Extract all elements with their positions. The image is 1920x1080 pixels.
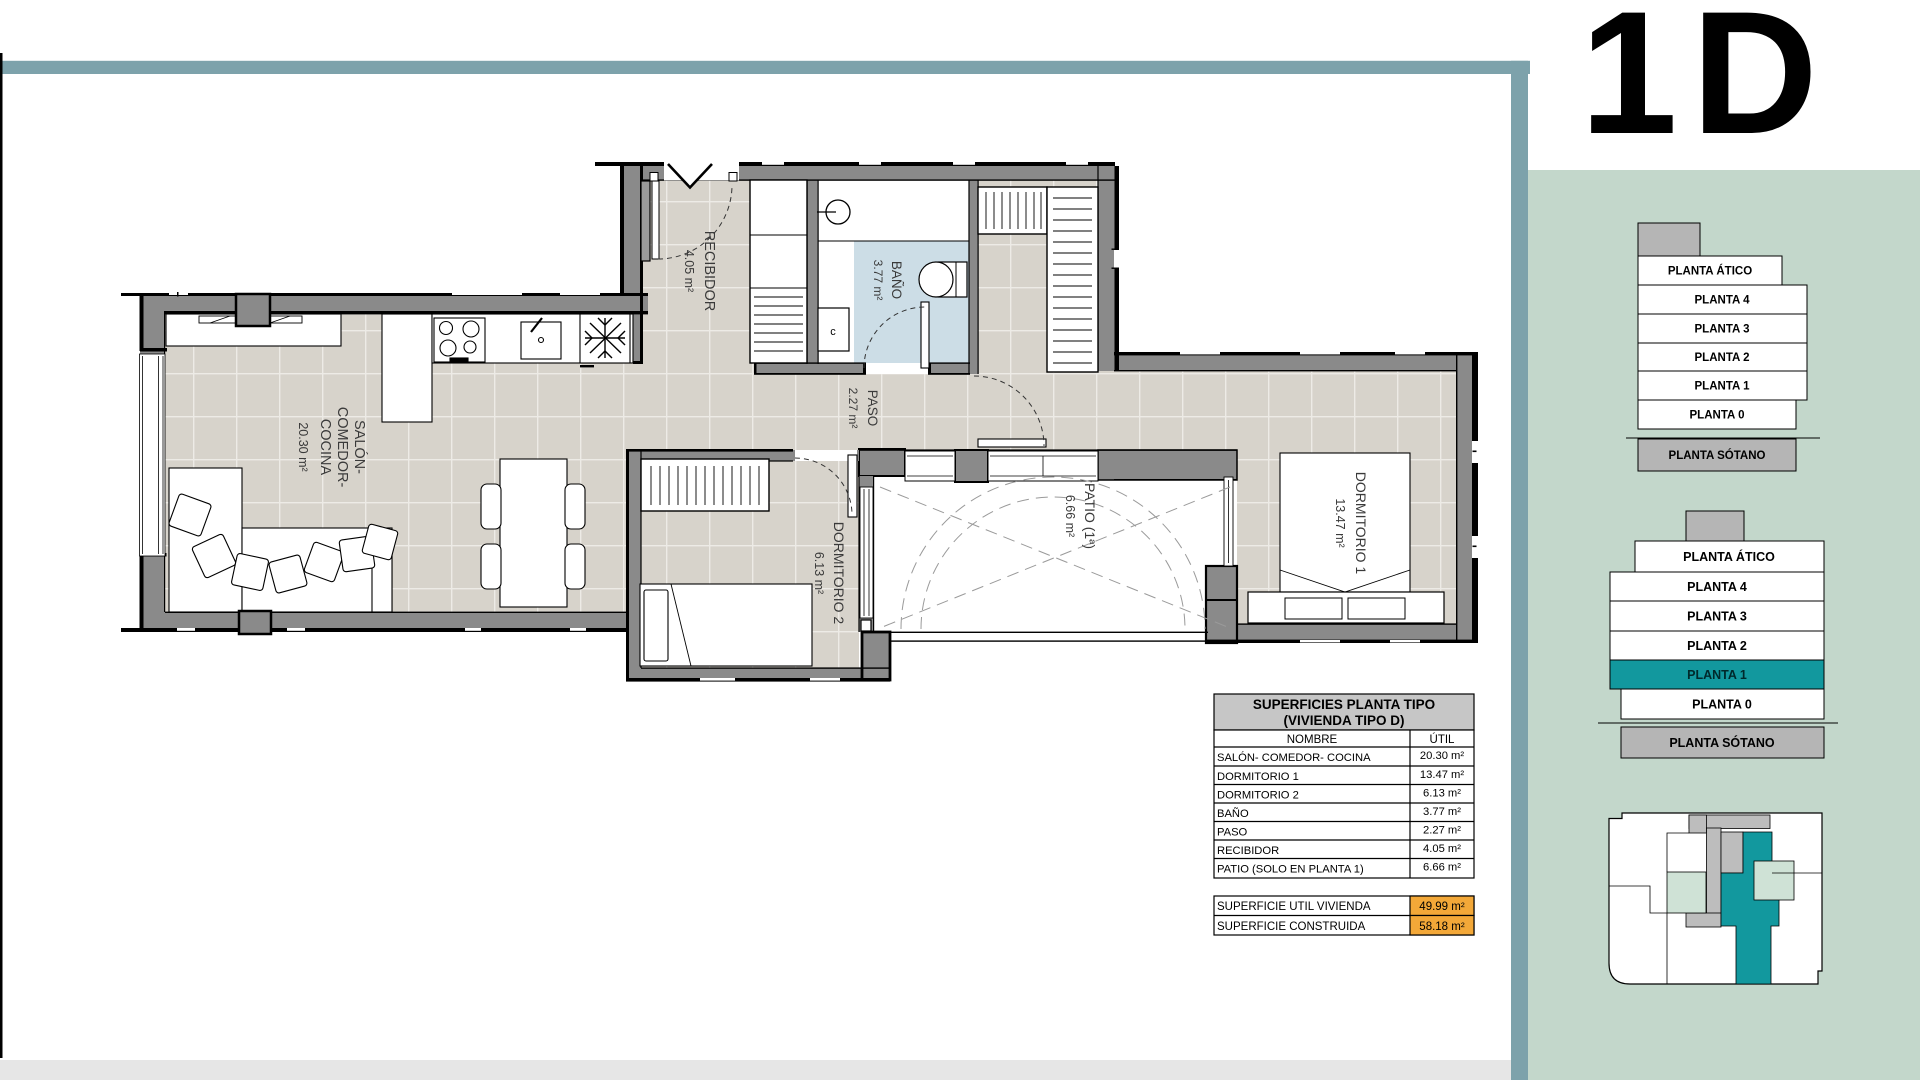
svg-text:13.47 m²: 13.47 m² [1420,769,1464,781]
svg-text:PLANTA 2: PLANTA 2 [1687,639,1747,653]
svg-text:NOMBRE: NOMBRE [1287,734,1338,746]
svg-text:DORMITORIO 2: DORMITORIO 2 [1217,790,1299,802]
svg-text:BAÑO: BAÑO [1217,807,1249,820]
svg-text:3.77 m²: 3.77 m² [1423,806,1461,818]
svg-text:PLANTA 0: PLANTA 0 [1692,698,1752,712]
svg-text:3.77 m²: 3.77 m² [871,260,885,301]
svg-text:6.66 m²: 6.66 m² [1063,495,1077,537]
svg-text:2.27 m²: 2.27 m² [846,388,860,429]
svg-text:4.05 m²: 4.05 m² [1423,843,1461,855]
svg-text:SALÓN-: SALÓN- [351,420,368,474]
svg-text:RECIBIDOR: RECIBIDOR [1217,845,1279,857]
svg-text:DORMITORIO 1: DORMITORIO 1 [1217,771,1299,783]
svg-text:58.18 m²: 58.18 m² [1419,921,1465,933]
svg-text:PLANTA ÁTICO: PLANTA ÁTICO [1668,265,1752,278]
svg-text:PATIO (SOLO EN PLANTA 1): PATIO (SOLO EN PLANTA 1) [1217,864,1364,876]
svg-text:4.05 m²: 4.05 m² [682,250,696,292]
svg-text:PLANTA 4: PLANTA 4 [1695,295,1751,307]
svg-text:1D: 1D [1580,0,1832,171]
svg-text:COMEDOR-: COMEDOR- [334,407,350,488]
svg-text:PLANTA 1: PLANTA 1 [1695,381,1751,393]
svg-text:PLANTA 4: PLANTA 4 [1687,580,1747,594]
svg-text:PLANTA SÓTANO: PLANTA SÓTANO [1669,735,1775,750]
svg-text:SUPERFICIE UTIL VIVIENDA: SUPERFICIE UTIL VIVIENDA [1217,901,1371,913]
svg-text:SUPERFICIE CONSTRUIDA: SUPERFICIE CONSTRUIDA [1217,921,1366,933]
svg-text:DORMITORIO 2: DORMITORIO 2 [831,522,847,625]
svg-text:20.30 m²: 20.30 m² [1420,750,1464,762]
svg-text:BAÑO: BAÑO [889,261,904,299]
svg-text:2.27 m²: 2.27 m² [1423,825,1461,837]
svg-text:PLANTA 0: PLANTA 0 [1690,410,1745,422]
svg-text:6.13 m²: 6.13 m² [1423,788,1461,800]
svg-text:PASO: PASO [1217,827,1248,839]
svg-text:SUPERFICIES PLANTA TIPO: SUPERFICIES PLANTA TIPO [1253,697,1435,712]
svg-text:PLANTA SÓTANO: PLANTA SÓTANO [1669,449,1766,462]
svg-text:SALÓN- COMEDOR- COCINA: SALÓN- COMEDOR- COCINA [1217,751,1371,764]
svg-text:13.47 m²: 13.47 m² [1333,498,1347,547]
svg-text:(VIVIENDA TIPO D): (VIVIENDA TIPO D) [1283,713,1404,728]
svg-text:PLANTA 2: PLANTA 2 [1695,352,1750,364]
svg-text:20.30 m²: 20.30 m² [296,422,310,471]
svg-text:PLANTA 1: PLANTA 1 [1687,668,1747,682]
svg-text:RECIBIDOR: RECIBIDOR [701,231,717,312]
svg-text:PLANTA ÁTICO: PLANTA ÁTICO [1683,549,1775,564]
svg-text:c: c [830,326,836,338]
svg-text:COCINA: COCINA [317,419,333,476]
svg-text:PASO: PASO [865,390,880,427]
svg-text:DORMITORIO 1: DORMITORIO 1 [1353,472,1369,575]
svg-text:ÚTIL: ÚTIL [1430,733,1456,746]
svg-text:49.99 m²: 49.99 m² [1419,901,1465,913]
svg-text:PLANTA 3: PLANTA 3 [1687,610,1747,624]
svg-text:PATIO (1ª): PATIO (1ª) [1082,483,1098,549]
svg-text:6.13 m²: 6.13 m² [812,552,826,594]
svg-text:6.66 m²: 6.66 m² [1423,862,1461,874]
svg-text:PLANTA 3: PLANTA 3 [1695,324,1750,336]
